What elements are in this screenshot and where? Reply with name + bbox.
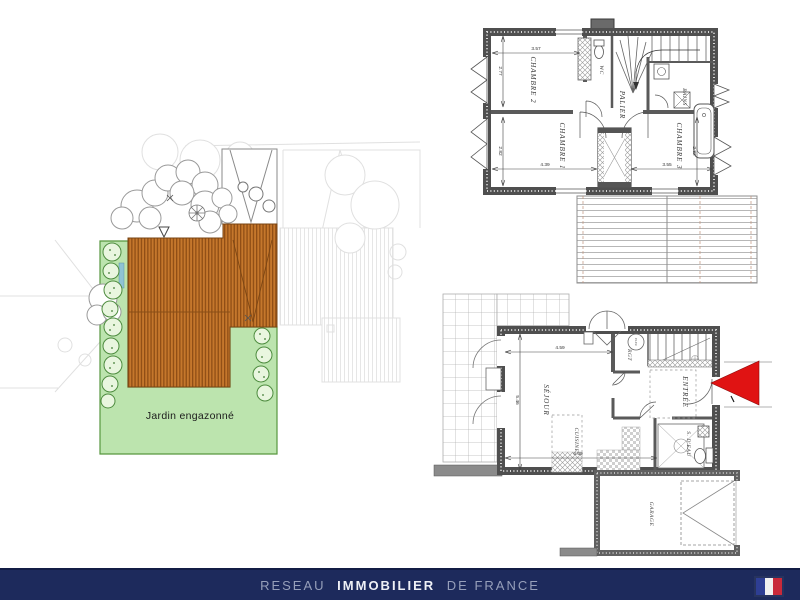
footer-brand: RESEAU IMMOBILIER DE FRANCE [260, 578, 540, 593]
room-label-wc: WC [598, 65, 604, 74]
room-label-chambre2: CHAMBRE 2 [529, 56, 537, 103]
garage: GARAGE [560, 473, 743, 556]
dim-bottom-width: 6.09 [573, 451, 583, 457]
garage-door-opening [733, 481, 743, 545]
garden-wall-stub [434, 465, 502, 476]
french-flag-icon [754, 576, 784, 597]
dim-chambre2-width: 3.57 [531, 46, 541, 52]
room-label-cuisine: CUISINE [573, 428, 579, 453]
dim-sejour-height: 5.46 [514, 395, 520, 405]
flag-blue-stripe [756, 578, 765, 595]
rosette-tree-icon [189, 205, 205, 221]
room-label-garage: GARAGE [648, 502, 654, 527]
terrace-tiles-top [497, 294, 569, 326]
dim-chambre3-height: 2.82 [691, 146, 697, 156]
elec-label: ELEC [634, 337, 638, 347]
site-plan: Jardin engazonné [0, 134, 420, 454]
footer-brand-immobilier: IMMOBILIER [337, 578, 435, 593]
dim-chambre1-width: 4.39 [540, 162, 550, 168]
room-label-sejour: SÉJOUR [542, 384, 552, 415]
kitchen-tiles-2 [597, 450, 640, 471]
garden-label: Jardin engazonné [146, 410, 234, 422]
upper-floor-plan: CHAMBRE 2 CHAMBRE 1 CHAMBRE 3 WC PALIER … [471, 19, 731, 196]
room-label-sdeau: S. D'EAU [685, 431, 691, 457]
footer-brand-defrance: DE FRANCE [447, 578, 540, 593]
plan-drawing: Jardin engazonné [0, 0, 800, 570]
flag-red-stripe [773, 578, 782, 595]
room-label-chambre1: CHAMBRE 1 [558, 122, 566, 169]
footer-brand-reseau: RESEAU [260, 578, 325, 593]
footer-bar: RESEAU IMMOBILIER DE FRANCE [0, 568, 800, 600]
room-label-bains: BAINS [681, 88, 687, 106]
roof-deck [577, 196, 757, 283]
small-arrow-marker-icon [159, 227, 169, 237]
dim-chambre1-height: 2.82 [497, 146, 503, 156]
dim-sejour-width: 4.59 [555, 345, 565, 351]
floor-plan-sheet: Jardin engazonné [0, 0, 800, 600]
kitchen-tiles-1 [622, 427, 640, 450]
garage-wall-stub [560, 548, 597, 556]
room-label-chambre3: CHAMBRE 3 [675, 122, 683, 169]
room-label-rgt: RGT [626, 348, 632, 361]
flag-white-stripe [765, 578, 774, 595]
wc-duct [578, 38, 591, 80]
room-label-entree: ENTRÉE [681, 375, 691, 408]
arrow-tick [731, 396, 734, 402]
duct-shaft [598, 128, 631, 187]
dim-chambre3-width: 3.55 [662, 162, 672, 168]
dim-chambre2-height: 2.77 [497, 66, 503, 76]
room-label-palier: PALIER [618, 90, 626, 119]
